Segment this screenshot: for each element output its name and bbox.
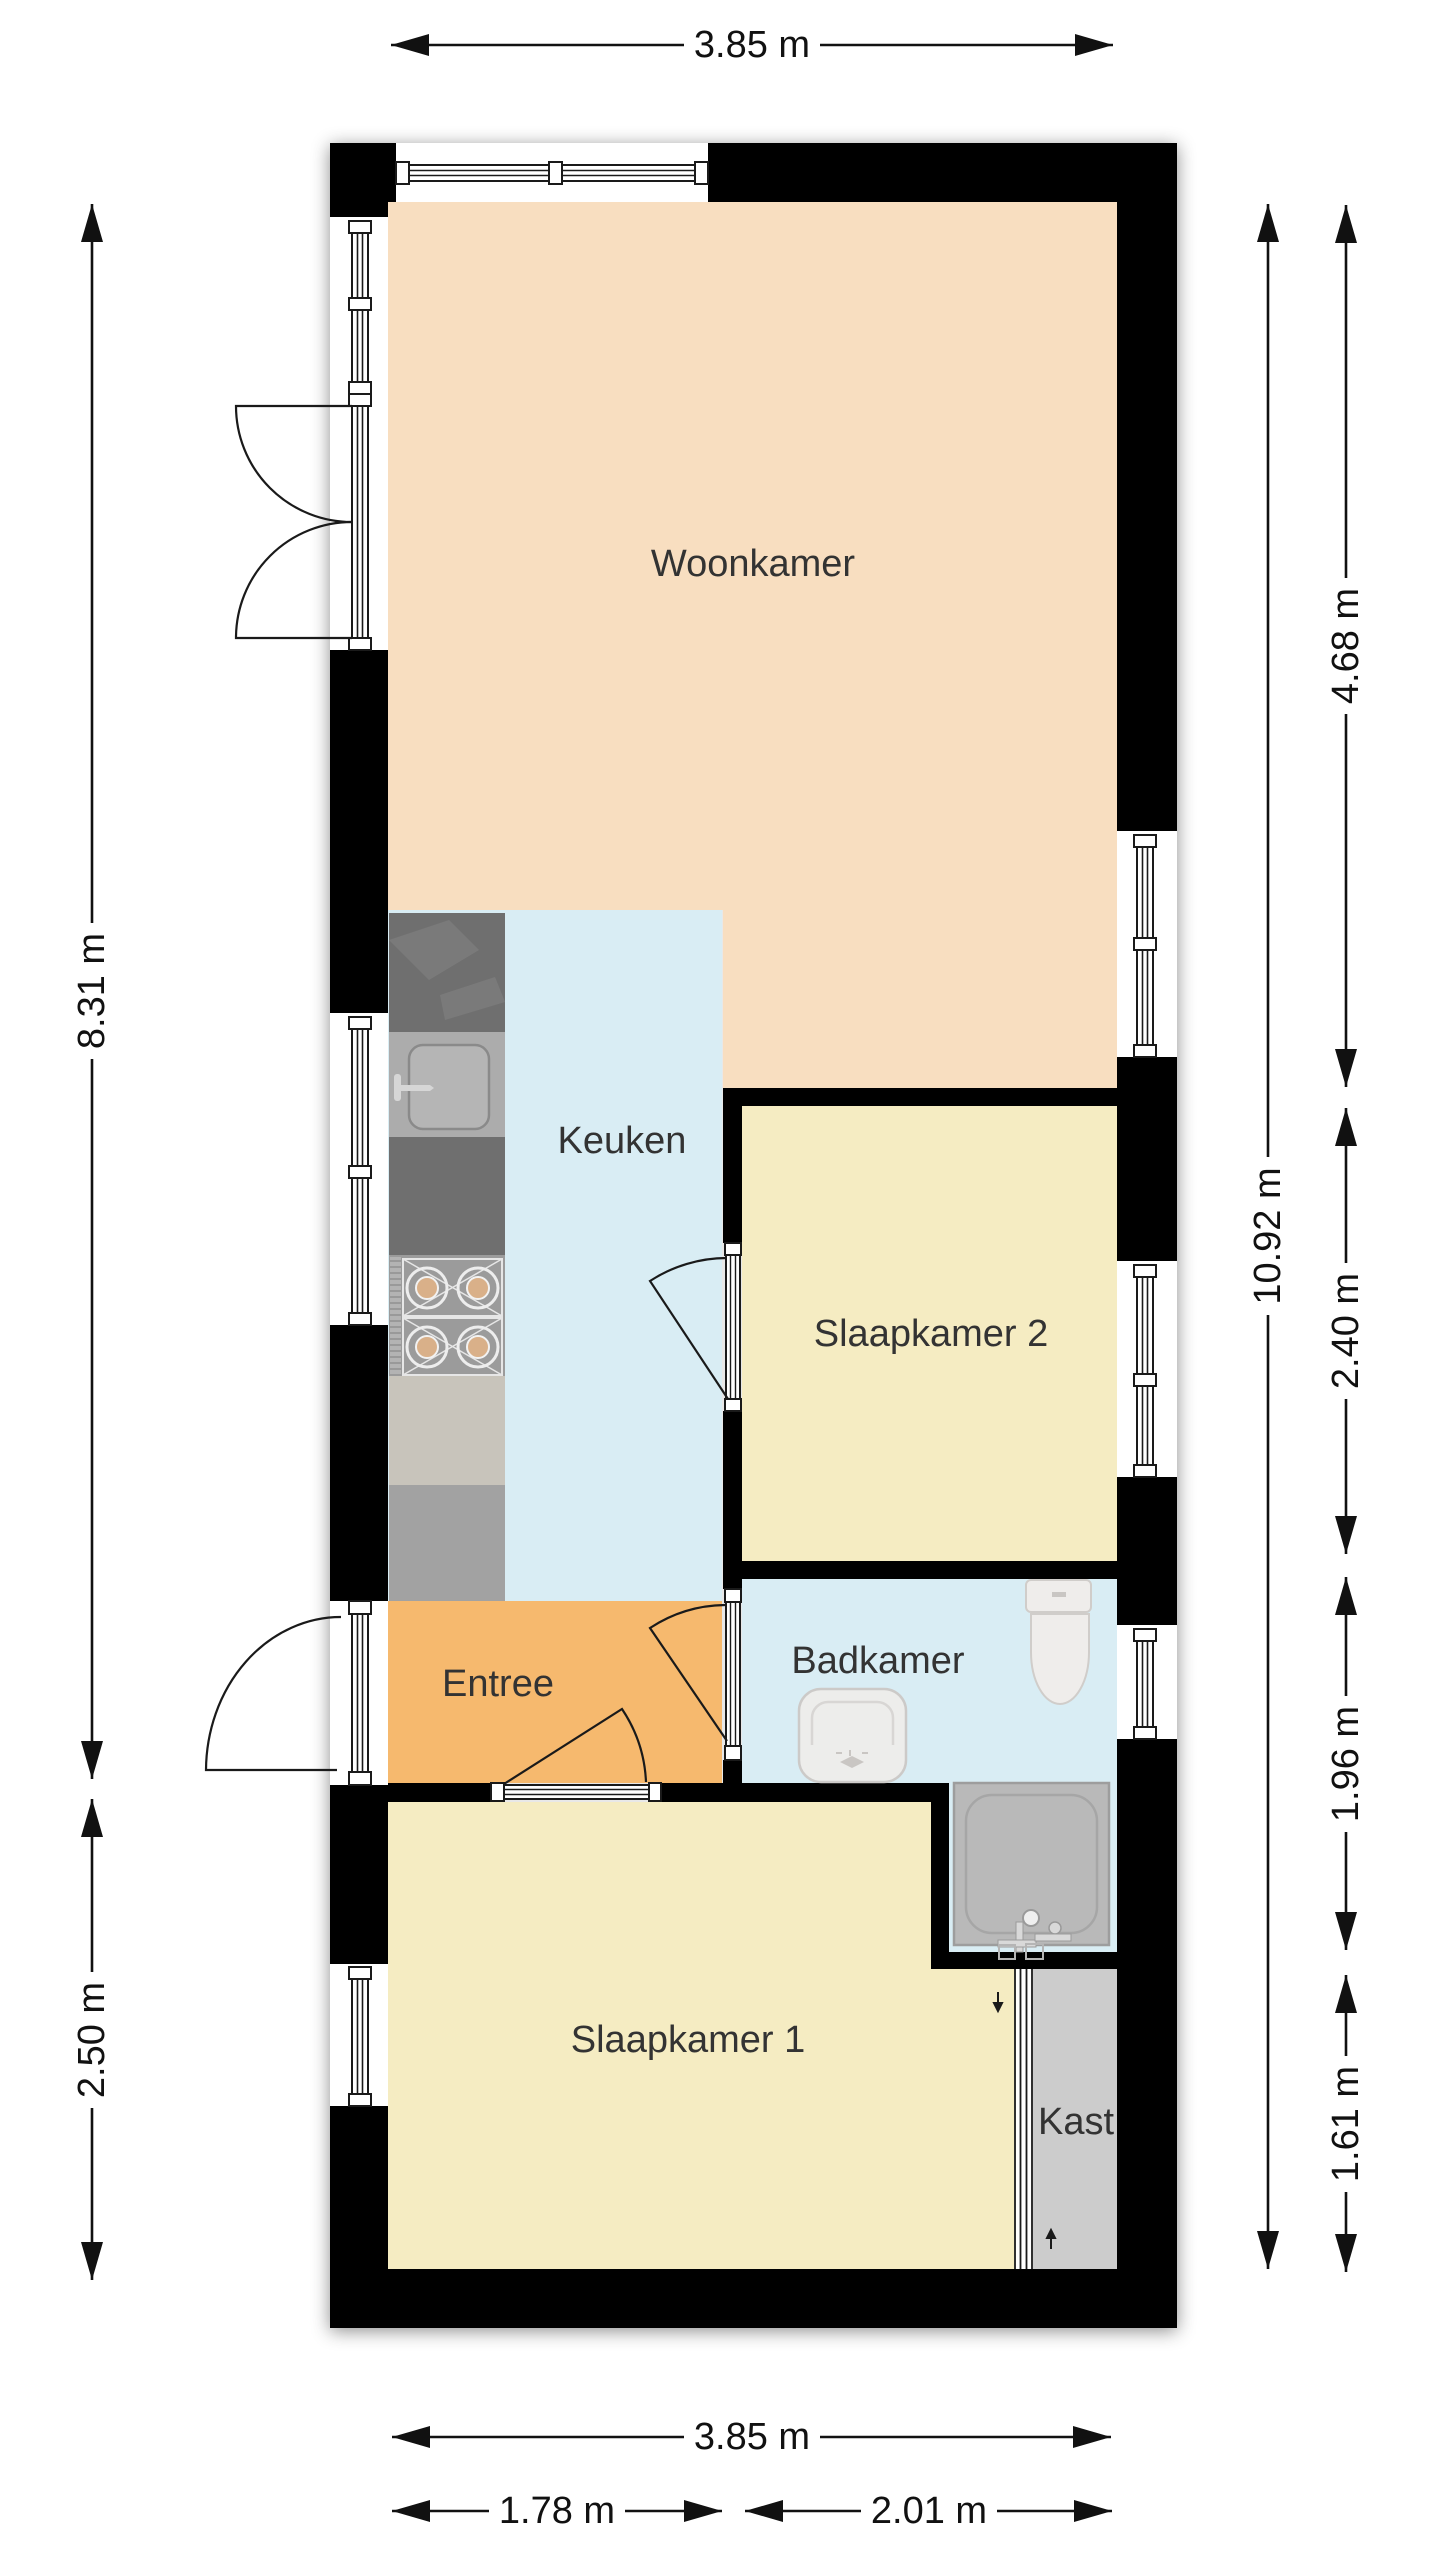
svg-text:3.85 m: 3.85 m (694, 24, 810, 66)
svg-text:Woonkamer: Woonkamer (651, 543, 856, 585)
svg-text:4.68 m: 4.68 m (1325, 588, 1367, 704)
svg-text:8.31 m: 8.31 m (71, 933, 113, 1049)
svg-text:Slaapkamer 2: Slaapkamer 2 (814, 1313, 1048, 1355)
svg-text:2.50 m: 2.50 m (71, 1982, 113, 2098)
svg-text:3.85 m: 3.85 m (694, 2416, 810, 2458)
svg-text:1.96 m: 1.96 m (1325, 1706, 1367, 1822)
svg-text:Badkamer: Badkamer (791, 1640, 965, 1682)
svg-text:2.40 m: 2.40 m (1325, 1273, 1367, 1389)
svg-text:Slaapkamer 1: Slaapkamer 1 (571, 2019, 805, 2061)
svg-text:1.78 m: 1.78 m (499, 2490, 615, 2532)
svg-text:Kast: Kast (1038, 2101, 1114, 2143)
svg-text:Entree: Entree (442, 1663, 554, 1705)
svg-text:Keuken: Keuken (558, 1120, 687, 1162)
svg-text:2.01 m: 2.01 m (871, 2490, 987, 2532)
svg-text:1.61 m: 1.61 m (1325, 2066, 1367, 2182)
svg-text:10.92 m: 10.92 m (1247, 1167, 1289, 1304)
